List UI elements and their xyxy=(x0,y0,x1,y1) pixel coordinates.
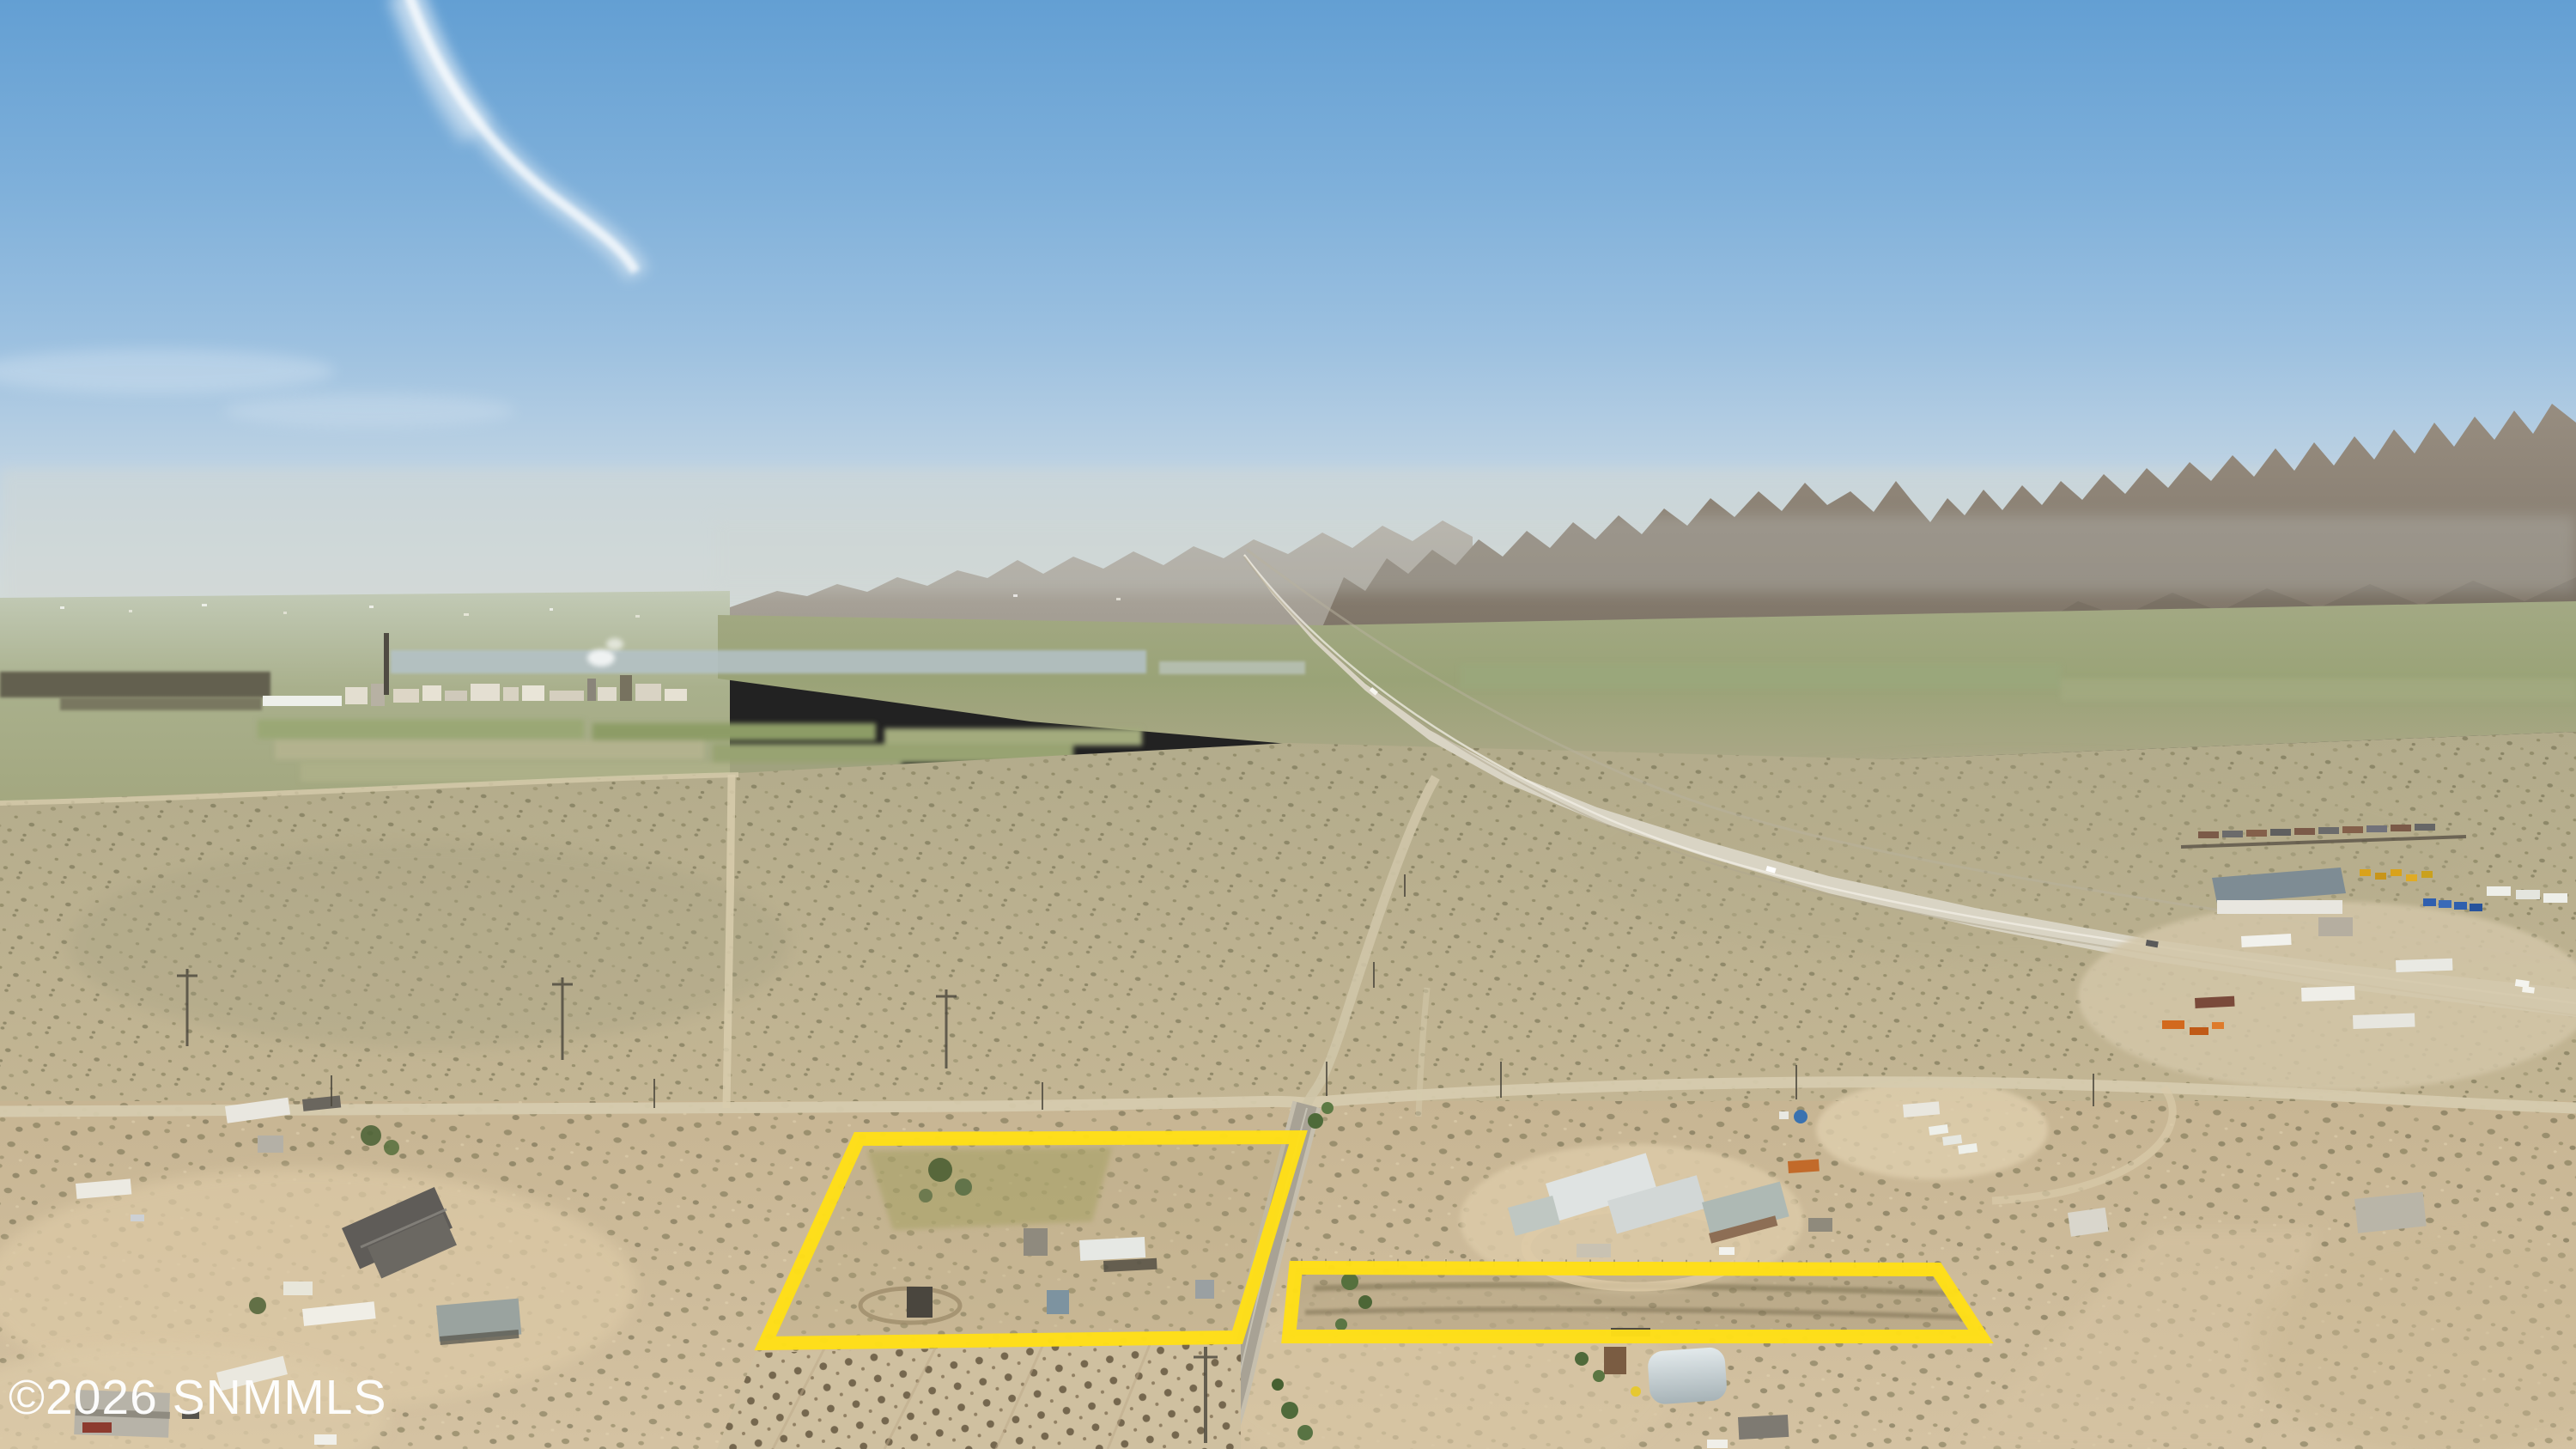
dirt-road-vertical xyxy=(726,775,732,1108)
plant-building xyxy=(445,691,467,701)
yellow-barrel xyxy=(1631,1386,1641,1397)
canopy xyxy=(283,1282,313,1295)
dark-shed xyxy=(907,1287,933,1318)
utility-box xyxy=(1779,1111,1789,1119)
plant-building xyxy=(522,685,544,701)
box-trailer xyxy=(1738,1415,1789,1440)
grass-band xyxy=(867,1148,1112,1230)
white-office-trailer xyxy=(2353,1013,2415,1029)
plant-building xyxy=(635,684,661,701)
mountain-haze xyxy=(713,515,2576,593)
shed xyxy=(1808,1218,1832,1232)
car xyxy=(131,1215,144,1221)
white-box-trailer xyxy=(2396,959,2452,972)
orchard xyxy=(717,1342,1241,1449)
tree xyxy=(1593,1370,1605,1382)
plant-building xyxy=(503,687,519,701)
plant-building xyxy=(550,691,584,701)
tree xyxy=(955,1178,972,1196)
quonset-hut xyxy=(1647,1347,1728,1405)
shed xyxy=(1024,1228,1048,1256)
plant-building xyxy=(393,689,419,703)
tree xyxy=(928,1158,952,1182)
steam-plume xyxy=(587,649,615,667)
plant-tower xyxy=(620,675,632,701)
yard-shed xyxy=(2318,917,2353,936)
bush xyxy=(919,1189,933,1202)
tree xyxy=(1575,1352,1589,1366)
cloud-wisp xyxy=(223,393,515,428)
tank-trailer xyxy=(2195,996,2235,1008)
shipping-container-orange xyxy=(1788,1159,1820,1172)
blue-shed xyxy=(1047,1290,1069,1314)
parcel-ground-tint xyxy=(1289,1268,1981,1336)
plant-building xyxy=(598,687,617,701)
watermark-text: ©2026 SNMMLS xyxy=(9,1370,387,1425)
aerial-photo: ©2026 SNMMLS xyxy=(0,0,2576,1449)
plant-building xyxy=(345,687,368,704)
water-tank-blue xyxy=(1794,1110,1807,1123)
warehouse-wall xyxy=(2217,900,2342,914)
tree xyxy=(249,1297,266,1314)
plant-tower xyxy=(587,679,596,701)
plant-building xyxy=(471,684,500,701)
orchard-trees xyxy=(717,1342,1241,1449)
steam-plume xyxy=(606,638,623,650)
pond-band xyxy=(391,650,1146,673)
plant-building xyxy=(422,685,441,701)
tree xyxy=(384,1140,399,1155)
shed xyxy=(258,1135,283,1153)
plant-tower xyxy=(371,684,385,706)
plowed-field-dark xyxy=(60,697,262,710)
lean-to xyxy=(1577,1244,1611,1257)
pickup-truck xyxy=(1719,1247,1735,1255)
brown-shed xyxy=(1604,1347,1626,1374)
small-shed xyxy=(1195,1280,1214,1299)
outbuilding xyxy=(2354,1192,2427,1233)
canopy-structure xyxy=(1079,1237,1145,1261)
plant-building xyxy=(263,696,342,706)
scrub-variation xyxy=(69,842,790,1048)
plowed-field-dark xyxy=(0,672,270,697)
pickup-truck xyxy=(1707,1440,1728,1448)
white-office-trailer xyxy=(2301,986,2355,1002)
plant-building xyxy=(665,689,687,701)
van xyxy=(314,1434,337,1445)
smokestack xyxy=(384,633,389,695)
tree xyxy=(361,1125,381,1146)
pond-band-far xyxy=(1159,661,1305,674)
